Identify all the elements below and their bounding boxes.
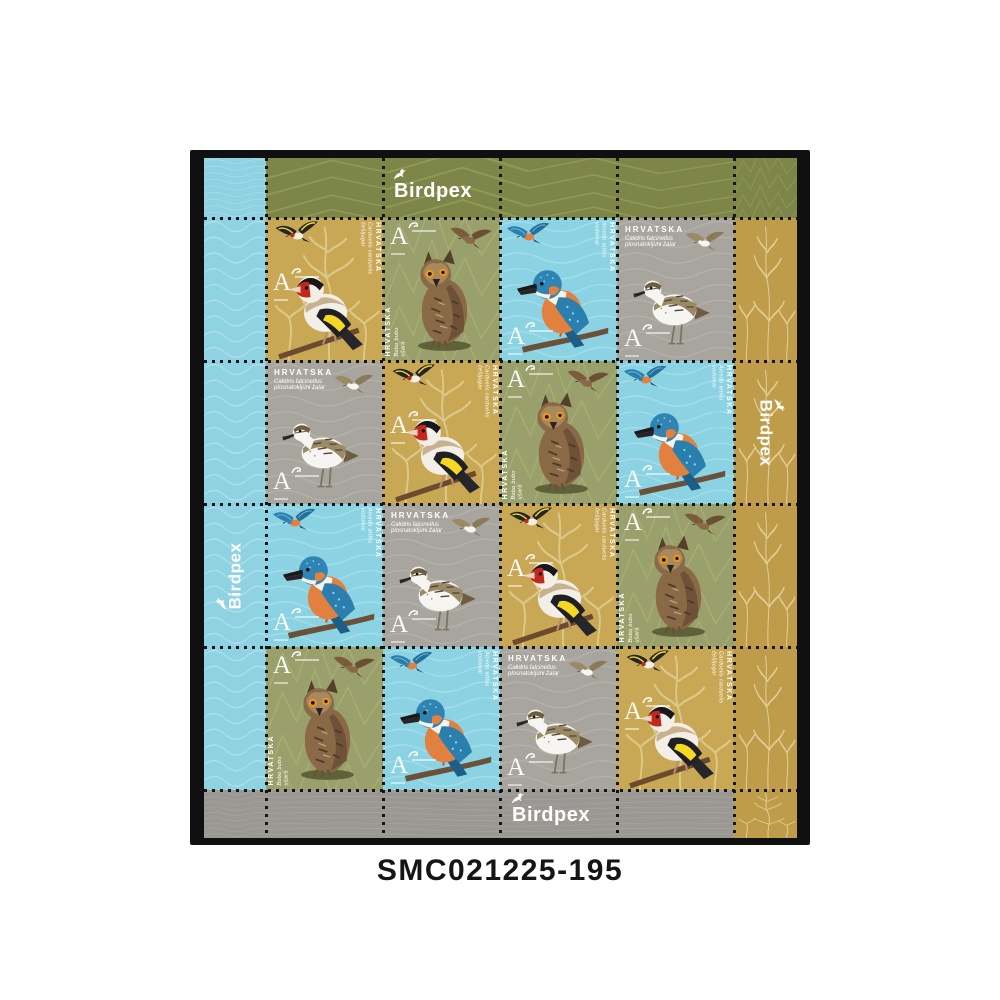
birdpex-bird-icon xyxy=(509,791,525,805)
flying-sandpiper-icon xyxy=(331,373,377,401)
croatian-name: češljugar xyxy=(359,222,366,274)
posthorn-swoosh-icon xyxy=(408,750,419,759)
country-label: HRVATSKA xyxy=(619,592,628,643)
flying-kingfisher-icon xyxy=(268,506,322,541)
denomination-microtext-bar xyxy=(295,659,319,661)
margin-right-2: Birdpex xyxy=(734,361,797,504)
flying-sandpiper-icon xyxy=(565,659,611,687)
margin-top-banner: Birdpex xyxy=(266,158,734,218)
stamp-inscription-vertical: HRVATSKAAlcedo atthisvodomar xyxy=(476,651,499,702)
country-label: HRVATSKA xyxy=(268,735,277,786)
denomination-letter: A xyxy=(390,223,408,250)
margin-right-3 xyxy=(734,504,797,647)
denomination-microtext-bar xyxy=(646,332,670,334)
denomination-letter: A xyxy=(624,466,642,493)
flying-kingfisher-icon xyxy=(619,363,673,398)
latin-name: Alcedo atthis xyxy=(599,222,606,273)
croatian-name: plosnatokljuni žalar xyxy=(508,671,567,677)
denomination-microtext-bar xyxy=(529,761,553,763)
denomination-letter: A xyxy=(273,269,291,296)
denomination-letter: A xyxy=(390,412,408,439)
country-label: HRVATSKA xyxy=(723,365,732,416)
posthorn-swoosh-icon xyxy=(525,364,536,373)
owl-main-illustration xyxy=(516,386,604,502)
posthorn-swoosh-icon xyxy=(408,221,419,230)
birdpex-bird-icon xyxy=(768,396,787,412)
stamp-kingfisher: AHRVATSKAAlcedo atthisvodomar xyxy=(617,361,734,504)
denomination-block: A xyxy=(507,324,525,349)
birdpex-logo-right: Birdpex xyxy=(756,399,776,466)
denomination-microtext-bar xyxy=(274,498,288,500)
stamp-sandpiper: HRVATSKACalidris falcinellusplosnatoklju… xyxy=(617,218,734,361)
flying-sandpiper-icon xyxy=(682,230,728,258)
denomination-microtext-bar xyxy=(274,682,288,684)
denomination-block: A xyxy=(273,469,291,494)
flying-sandpiper-icon xyxy=(448,516,494,544)
croatian-name: ušara xyxy=(635,592,642,643)
flying-sandpiper-icon xyxy=(331,373,377,401)
denomination-block: A xyxy=(390,224,408,249)
flying-goldfinch-icon xyxy=(387,361,444,397)
flying-sandpiper-icon xyxy=(448,516,494,544)
croatian-name: plosnatokljuni žalar xyxy=(625,242,684,248)
flying-kingfisher-icon xyxy=(385,649,439,684)
stamp-owl: AHRVATSKABubo buboušara xyxy=(266,647,383,790)
owl-main-illustration xyxy=(633,529,721,645)
denomination-letter: A xyxy=(273,468,291,495)
stamp-goldfinch: AHRVATSKACarduelis carduelisčešljugar xyxy=(617,647,734,790)
denomination-microtext-bar xyxy=(625,539,639,541)
country-label: HRVATSKA xyxy=(372,222,381,274)
denomination-letter: A xyxy=(507,323,525,350)
denomination-letter: A xyxy=(624,509,642,536)
posthorn-swoosh-icon xyxy=(642,507,653,516)
country-label: HRVATSKA xyxy=(723,651,732,703)
margin-bottom-banner: Birdpex xyxy=(266,790,734,838)
margin-corner-bottom-right xyxy=(734,790,797,838)
margin-left-1 xyxy=(204,218,266,361)
denomination-block: A xyxy=(273,270,291,295)
birdpex-logo-bottom: Birdpex xyxy=(512,804,590,827)
denomination-block: A xyxy=(390,413,408,438)
denomination-block: A xyxy=(507,367,525,392)
stamp-sandpiper: HRVATSKACalidris falcinellusplosnatoklju… xyxy=(266,361,383,504)
denomination-microtext-bar xyxy=(646,516,670,518)
flying-sandpiper-icon xyxy=(682,230,728,258)
stamp-inscription: HRVATSKACalidris falcinellusplosnatoklju… xyxy=(391,511,450,534)
denomination-letter: A xyxy=(507,366,525,393)
birdpex-logo-top: Birdpex xyxy=(394,180,472,203)
latin-name: Bubo bubo xyxy=(277,735,284,786)
latin-name: Carduelis carduelis xyxy=(482,365,489,417)
denomination-microtext-bar xyxy=(274,299,288,301)
denomination-microtext-bar xyxy=(295,276,319,278)
country-label: HRVATSKA xyxy=(502,449,511,500)
stamp-inscription-vertical: HRVATSKAAlcedo atthisvodomar xyxy=(710,365,733,416)
croatian-name: vodomar xyxy=(710,365,717,416)
flying-kingfisher-icon xyxy=(502,220,556,255)
latin-name: Bubo bubo xyxy=(394,306,401,357)
flying-goldfinch-icon xyxy=(504,504,561,540)
margin-corner-bottom-left xyxy=(204,790,266,838)
croatian-name: ušara xyxy=(518,449,525,500)
stamp-inscription-vertical: HRVATSKABubo buboušara xyxy=(385,306,408,357)
latin-name: Bubo bubo xyxy=(511,449,518,500)
flying-kingfisher-icon xyxy=(502,220,556,255)
posthorn-swoosh-icon xyxy=(408,410,419,419)
posthorn-swoosh-icon xyxy=(291,607,302,616)
flying-goldfinch-icon xyxy=(504,504,561,540)
country-label: HRVATSKA xyxy=(508,654,567,663)
margin-right-1 xyxy=(734,218,797,361)
posthorn-swoosh-icon xyxy=(525,321,536,330)
posthorn-swoosh-icon xyxy=(408,609,419,618)
mountain-pattern xyxy=(266,158,734,218)
latin-name: Alcedo atthis xyxy=(482,651,489,702)
flying-kingfisher-icon xyxy=(385,649,439,684)
posthorn-swoosh-icon xyxy=(525,752,536,761)
stamp-inscription-vertical: HRVATSKABubo buboušara xyxy=(268,735,291,786)
denomination-microtext-bar xyxy=(508,585,522,587)
stamp-inscription: HRVATSKACalidris falcinellusplosnatoklju… xyxy=(625,225,684,248)
stamp-inscription-vertical: HRVATSKABubo buboušara xyxy=(502,449,525,500)
croatian-name: vodomar xyxy=(359,508,366,559)
denomination-block: A xyxy=(624,467,642,492)
margin-left-3: Birdpex xyxy=(204,504,266,647)
denomination-block: A xyxy=(507,556,525,581)
stamp-goldfinch: AHRVATSKACarduelis carduelisčešljugar xyxy=(266,218,383,361)
posthorn-swoosh-icon xyxy=(291,650,302,659)
denomination-letter: A xyxy=(507,754,525,781)
flying-kingfisher-icon xyxy=(268,506,322,541)
latin-name: Alcedo atthis xyxy=(716,365,723,416)
denomination-microtext-bar xyxy=(625,728,639,730)
stamp-inscription: HRVATSKACalidris falcinellusplosnatoklju… xyxy=(508,654,567,677)
birdpex-logo-left: Birdpex xyxy=(225,542,245,609)
denomination-microtext-bar xyxy=(625,355,639,357)
flying-kingfisher-icon xyxy=(619,363,673,398)
denomination-letter: A xyxy=(390,611,408,638)
denomination-block: A xyxy=(624,699,642,724)
country-label: HRVATSKA xyxy=(489,651,498,702)
denomination-microtext-bar xyxy=(295,475,319,477)
margin-right-4 xyxy=(734,647,797,790)
stamp-kingfisher: AHRVATSKAAlcedo atthisvodomar xyxy=(266,504,383,647)
denomination-letter: A xyxy=(390,752,408,779)
stamp-kingfisher: AHRVATSKAAlcedo atthisvodomar xyxy=(383,647,500,790)
denomination-microtext-bar xyxy=(508,784,522,786)
country-label: HRVATSKA xyxy=(606,222,615,273)
denomination-microtext-bar xyxy=(412,230,436,232)
flying-goldfinch-icon xyxy=(270,218,327,254)
croatian-name: češljugar xyxy=(476,365,483,417)
posthorn-swoosh-icon xyxy=(291,267,302,276)
owl-main-illustration xyxy=(399,243,487,359)
branch-pattern xyxy=(734,504,797,647)
country-label: HRVATSKA xyxy=(606,508,615,560)
owl-main-illustration xyxy=(282,672,370,788)
denomination-microtext-bar xyxy=(295,616,319,618)
denomination-microtext-bar xyxy=(646,473,670,475)
birdpex-bird-icon xyxy=(214,596,233,612)
stamp-sheet: Birdpex Birdpex Birdpex Birdpex xyxy=(204,158,797,838)
latin-name: Alcedo atthis xyxy=(365,508,372,559)
latin-name: Carduelis carduelis xyxy=(716,651,723,703)
stamp-inscription-vertical: HRVATSKAAlcedo atthisvodomar xyxy=(359,508,382,559)
country-label: HRVATSKA xyxy=(391,511,450,520)
croatian-name: plosnatokljuni žalar xyxy=(391,528,450,534)
denomination-block: A xyxy=(624,326,642,351)
margin-corner-top-left xyxy=(204,158,266,218)
denomination-letter: A xyxy=(273,609,291,636)
stamp-inscription-vertical: HRVATSKACarduelis carduelisčešljugar xyxy=(476,365,499,417)
branch-pattern xyxy=(734,218,797,361)
denomination-block: A xyxy=(390,612,408,637)
denomination-microtext-bar xyxy=(508,396,522,398)
stamp-sandpiper: HRVATSKACalidris falcinellusplosnatoklju… xyxy=(383,504,500,647)
denomination-microtext-bar xyxy=(529,562,553,564)
latin-name: Carduelis carduelis xyxy=(599,508,606,560)
stamp-kingfisher: AHRVATSKAAlcedo atthisvodomar xyxy=(500,218,617,361)
stamp-goldfinch: AHRVATSKACarduelis carduelisčešljugar xyxy=(383,361,500,504)
eagle-owl-illustration xyxy=(516,386,604,502)
croatian-name: ušara xyxy=(401,306,408,357)
denomination-microtext-bar xyxy=(391,442,405,444)
stamp-inscription: HRVATSKACalidris falcinellusplosnatoklju… xyxy=(274,368,333,391)
denomination-block: A xyxy=(273,610,291,635)
stamp-inscription-vertical: HRVATSKACarduelis carduelisčešljugar xyxy=(710,651,733,703)
margin-corner-top-right xyxy=(734,158,797,218)
birdpex-bird-icon xyxy=(391,167,407,181)
latin-name: Bubo bubo xyxy=(628,592,635,643)
stamp-inscription-vertical: HRVATSKAAlcedo atthisvodomar xyxy=(593,222,616,273)
wave-pattern xyxy=(204,647,266,790)
denomination-block: A xyxy=(507,755,525,780)
stamp-inscription-vertical: HRVATSKACarduelis carduelisčešljugar xyxy=(593,508,616,560)
margin-left-2 xyxy=(204,361,266,504)
country-label: HRVATSKA xyxy=(625,225,684,234)
latin-name: Carduelis carduelis xyxy=(365,222,372,274)
flying-goldfinch-icon xyxy=(270,218,327,254)
wave-pattern xyxy=(204,361,266,504)
birdpex-bird-icon xyxy=(391,167,407,186)
branch-pattern xyxy=(734,647,797,790)
denomination-letter: A xyxy=(273,652,291,679)
posthorn-swoosh-icon xyxy=(291,466,302,475)
croatian-name: vodomar xyxy=(476,651,483,702)
stamp-owl: AHRVATSKABubo buboušara xyxy=(383,218,500,361)
posthorn-swoosh-icon xyxy=(525,553,536,562)
birdpex-bird-icon xyxy=(214,596,228,612)
wave-pattern xyxy=(204,218,266,361)
denomination-microtext-bar xyxy=(391,641,405,643)
flying-goldfinch-icon xyxy=(621,647,678,683)
stamp-inscription-vertical: HRVATSKACarduelis carduelisčešljugar xyxy=(359,222,382,274)
margin-left-4 xyxy=(204,647,266,790)
posthorn-swoosh-icon xyxy=(642,464,653,473)
mountain-pattern xyxy=(734,158,797,218)
wave-pattern xyxy=(204,158,266,218)
wave-pattern xyxy=(266,790,734,838)
wave-pattern xyxy=(204,790,266,838)
denomination-microtext-bar xyxy=(529,373,553,375)
croatian-name: ušara xyxy=(284,735,291,786)
country-label: HRVATSKA xyxy=(385,306,394,357)
stamp-owl: AHRVATSKABubo buboušara xyxy=(617,504,734,647)
croatian-name: češljugar xyxy=(710,651,717,703)
stamp-owl: AHRVATSKABubo buboušara xyxy=(500,361,617,504)
catalog-caption: SMC021225-195 xyxy=(0,854,1000,888)
denomination-microtext-bar xyxy=(412,419,436,421)
denomination-letter: A xyxy=(624,325,642,352)
denomination-microtext-bar xyxy=(625,496,639,498)
eagle-owl-illustration xyxy=(282,672,370,788)
denomination-microtext-bar xyxy=(391,253,405,255)
denomination-block: A xyxy=(273,653,291,678)
stamp-inscription-vertical: HRVATSKABubo buboušara xyxy=(619,592,642,643)
eagle-owl-illustration xyxy=(399,243,487,359)
stamp-goldfinch: AHRVATSKACarduelis carduelisčešljugar xyxy=(500,504,617,647)
birdpex-bird-icon xyxy=(773,396,787,412)
denomination-block: A xyxy=(624,510,642,535)
denomination-microtext-bar xyxy=(391,782,405,784)
birdpex-bird-icon xyxy=(509,791,525,810)
croatian-name: vodomar xyxy=(593,222,600,273)
denomination-microtext-bar xyxy=(412,618,436,620)
posthorn-swoosh-icon xyxy=(642,696,653,705)
croatian-name: plosnatokljuni žalar xyxy=(274,385,333,391)
denomination-microtext-bar xyxy=(412,759,436,761)
denomination-microtext-bar xyxy=(508,353,522,355)
denomination-microtext-bar xyxy=(274,639,288,641)
denomination-letter: A xyxy=(507,555,525,582)
flying-sandpiper-icon xyxy=(565,659,611,687)
branch-pattern xyxy=(734,790,797,838)
denomination-microtext-bar xyxy=(529,330,553,332)
flying-goldfinch-icon xyxy=(387,361,444,397)
country-label: HRVATSKA xyxy=(489,365,498,417)
croatian-name: češljugar xyxy=(593,508,600,560)
posthorn-swoosh-icon xyxy=(642,323,653,332)
denomination-letter: A xyxy=(624,698,642,725)
country-label: HRVATSKA xyxy=(372,508,381,559)
stamp-sheet-photo: Birdpex Birdpex Birdpex Birdpex xyxy=(190,150,810,845)
flying-goldfinch-icon xyxy=(621,647,678,683)
stamp-sandpiper: HRVATSKACalidris falcinellusplosnatoklju… xyxy=(500,647,617,790)
denomination-block: A xyxy=(390,753,408,778)
denomination-microtext-bar xyxy=(646,705,670,707)
country-label: HRVATSKA xyxy=(274,368,333,377)
eagle-owl-illustration xyxy=(633,529,721,645)
